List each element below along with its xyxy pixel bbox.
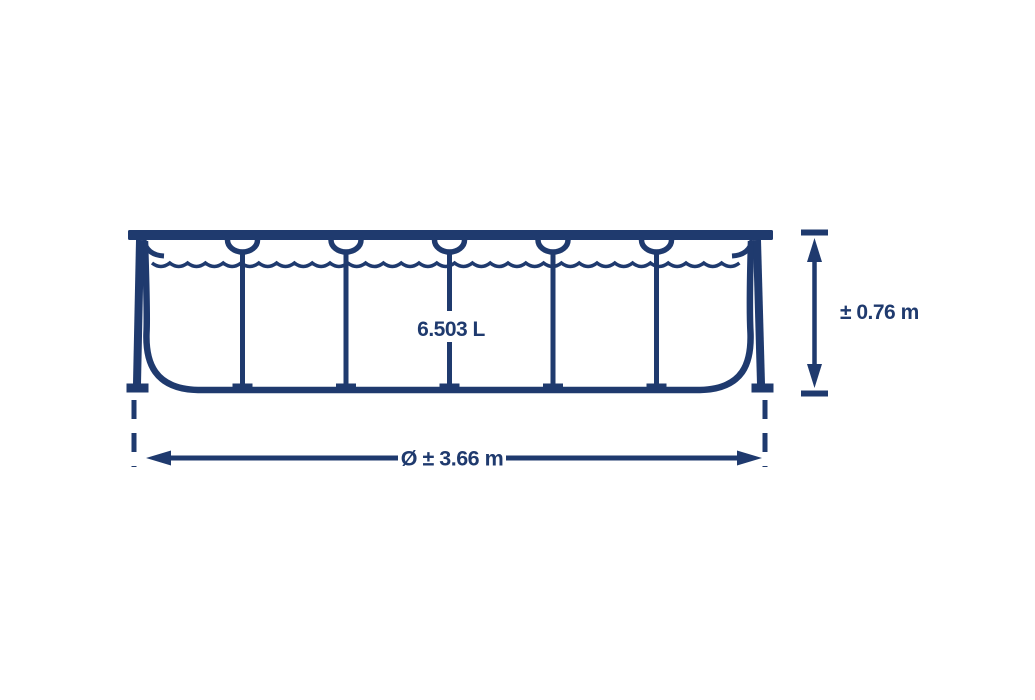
leg-collar <box>228 240 258 252</box>
height-dimension: ± 0.76 m <box>801 230 919 397</box>
right-leg-foot <box>752 384 774 393</box>
leg-collar <box>331 240 361 252</box>
height-tick-top <box>801 230 828 236</box>
arrowhead-right-icon <box>737 451 762 466</box>
arrowhead-up-icon <box>807 238 822 262</box>
height-tick-bottom <box>801 391 828 397</box>
arrowhead-down-icon <box>807 364 822 388</box>
diameter-dimension: Ø ± 3.66 m <box>134 400 765 471</box>
leg-collar <box>538 240 568 252</box>
pool-dimension-diagram: 6.503 L ± 0.76 m Ø ± 3.66 m <box>0 0 1035 700</box>
capacity-label: 6.503 L <box>417 318 485 341</box>
height-label: ± 0.76 m <box>840 301 919 324</box>
diameter-label: Ø ± 3.66 m <box>401 447 503 471</box>
right-leg <box>757 240 761 384</box>
arrowhead-left-icon <box>146 451 171 466</box>
interior-leg-foot <box>440 384 460 393</box>
interior-leg-foot <box>336 384 356 393</box>
interior-leg-foot <box>647 384 667 393</box>
interior-leg-foot <box>233 384 253 393</box>
left-leg <box>137 240 140 384</box>
leg-collar <box>435 240 465 252</box>
top-rail <box>128 230 773 240</box>
leg-collar <box>642 240 672 252</box>
interior-leg-foot <box>543 384 563 393</box>
pool-frame-group <box>127 230 774 393</box>
left-leg-foot <box>127 384 149 393</box>
